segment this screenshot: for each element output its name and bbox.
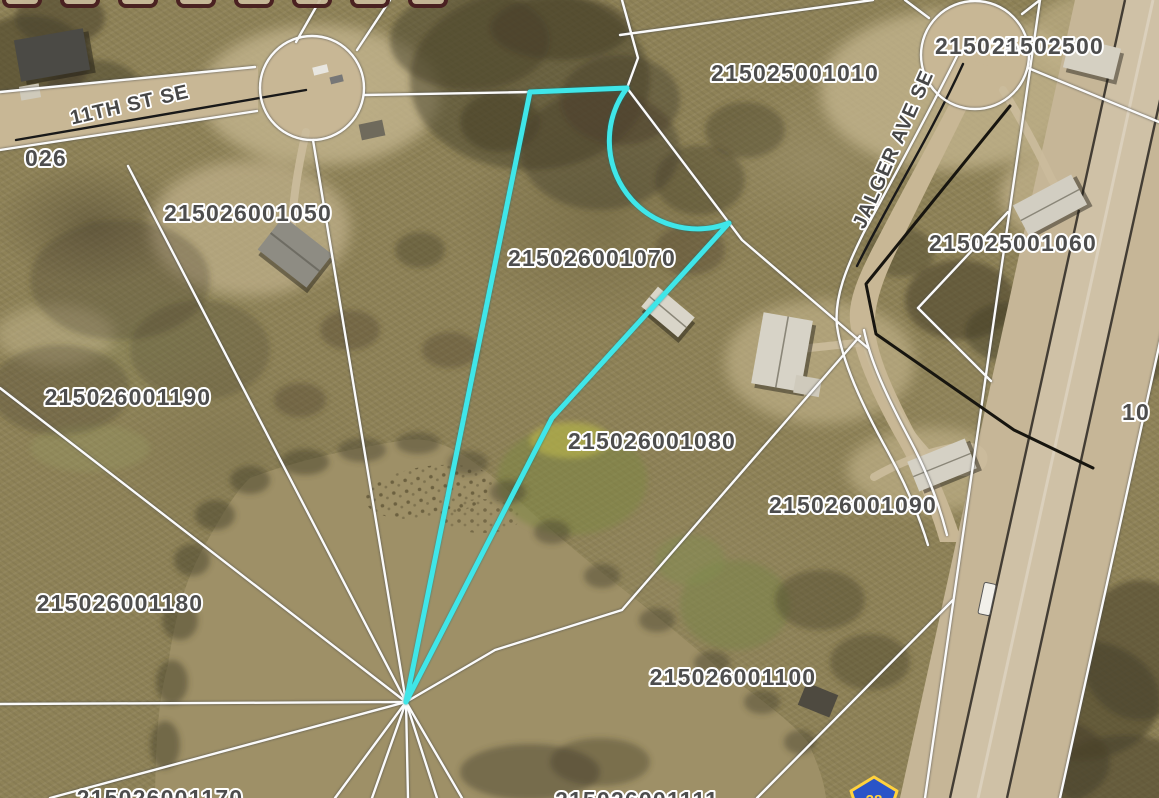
highway-shield: 28 [851,777,897,798]
parcel-label-215026001170: 215026001170 [77,785,244,798]
toolbar-tab-4[interactable] [176,0,216,8]
parcel-label-215025001060: 215025001060 [929,230,1097,256]
parcel-label-10: 10 [1122,399,1150,425]
parcel-label-215026001100: 215026001100 [650,664,817,690]
parcel-label-215026001050: 215026001050 [164,200,332,226]
toolbar-tab-5[interactable] [234,0,274,8]
toolbar-tab-3[interactable] [118,0,158,8]
parcel-label-215025001010: 215025001010 [711,60,879,86]
gis-map-viewport[interactable]: 2150260010502150260010702150250010102150… [0,0,1159,798]
parcel-label-215026001090: 215026001090 [769,492,937,518]
parcel-label-215026001111: 215026001111 [555,787,719,798]
parcel-label-215026001080: 215026001080 [568,428,736,454]
shield-number: 28 [866,792,883,798]
parcel-label-215026001070: 215026001070 [508,245,676,271]
parcel-label-21502500: 21502500 [992,33,1104,59]
parcel-label-215026001190: 215026001190 [45,384,212,410]
toolbar-tab-7[interactable] [350,0,390,8]
toolbar-tab-2[interactable] [60,0,100,8]
toolbar-tab-6[interactable] [292,0,332,8]
map-canvas[interactable]: 2150260010502150260010702150250010102150… [0,0,1159,798]
toolbar-tab-1[interactable] [2,0,42,8]
toolbar-tab-remnants [0,0,470,12]
parcel-label-215026001180: 215026001180 [37,590,204,616]
toolbar-tab-8[interactable] [408,0,448,8]
parcel-label-026: 026 [25,145,67,171]
